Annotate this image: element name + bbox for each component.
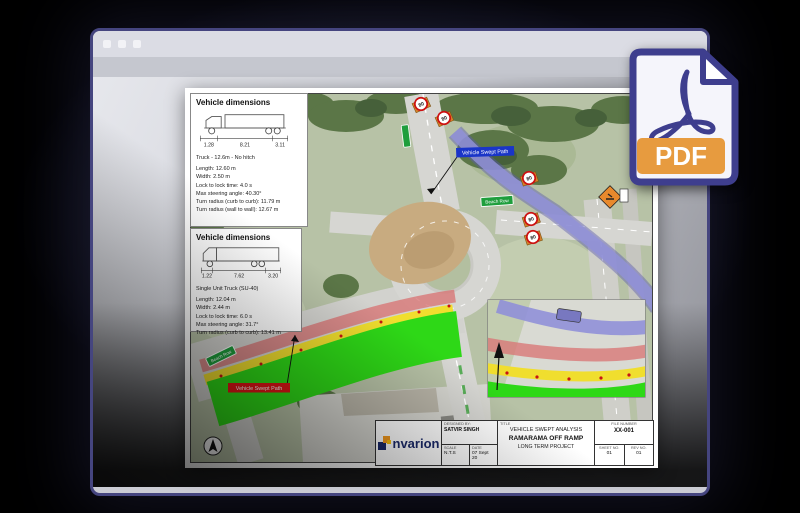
pdf-banner-label: PDF [655, 141, 707, 171]
drawing-title-line3: LONG TERM PROJECT [498, 444, 594, 450]
vehicle-spec: Width: 2.44 m [196, 304, 296, 312]
invarion-logo-icon [378, 436, 391, 451]
browser-window: 80 80 80 80 [90, 28, 710, 496]
vehicle-name: Truck - 12.6m - No hitch [196, 155, 302, 161]
title-block: nvarion Designed by: SATVIR SINGH SCALE … [375, 420, 654, 466]
file-number-label: FILE NUMBER [597, 422, 651, 426]
window-titlebar [93, 31, 707, 57]
scale-label: SCALE [444, 446, 467, 450]
window-control-dot[interactable] [103, 40, 111, 48]
drawing-title-line1: VEHICLE SWEPT ANALYSIS [498, 427, 594, 433]
date-value: 07 Sept 20 [472, 451, 495, 461]
drawing-title-line2: RAMARAMA OFF RAMP [498, 435, 594, 442]
vehicle-dimensions-box-1: Vehicle dimensions 1.28 [190, 93, 308, 227]
pdf-file-icon[interactable]: PDF [627, 46, 743, 188]
designed-by-value: SATVIR SINGH [444, 427, 495, 433]
rev-no-value: 01 [626, 451, 653, 456]
vehicle-spec: Width: 2.50 m [196, 173, 302, 181]
pdf-viewer-area: 80 80 80 80 [93, 77, 707, 487]
detail-inset [486, 300, 647, 397]
svg-text:3.20: 3.20 [268, 274, 278, 278]
scale-value: N.T.S [444, 451, 467, 456]
folded-corner-icon [703, 52, 735, 82]
desktop-background: 80 80 80 80 [0, 0, 800, 513]
date-label: DATE [472, 446, 495, 450]
window-control-dot[interactable] [118, 40, 126, 48]
vehicle-name: Single Unit Truck (SU-40) [196, 286, 296, 292]
svg-text:7.62: 7.62 [234, 274, 244, 278]
vehicle-box-title: Vehicle dimensions [196, 233, 296, 242]
svg-text:1.22: 1.22 [202, 274, 212, 278]
vehicle-spec: Length: 12.04 m [196, 296, 296, 304]
truck-diagram-icon: 1.28 8.21 3.11 [196, 109, 292, 147]
vehicle-spec: Max steering angle: 31.7° [196, 321, 296, 329]
vehicle-dimensions-box-2: Vehicle dimensions 1.22 [190, 228, 302, 332]
swept-path-label-blue: Vehicle Swept Path [456, 146, 514, 158]
invarion-logo: nvarion [376, 421, 442, 465]
truck-diagram-icon: 1.22 7.62 3.20 [196, 244, 286, 278]
vehicle-spec: Max steering angle: 40.30° [196, 190, 302, 198]
rev-no-label: REV NO. [626, 446, 653, 450]
vehicle-spec: Turn radius (wall to wall): 12.67 m [196, 206, 302, 214]
title-label: TITLE [500, 422, 510, 426]
svg-text:3.11: 3.11 [275, 143, 285, 147]
vehicle-spec: Turn radius (curb to curb): 13.41 m [196, 329, 296, 337]
street-name-sign: Beach Row [481, 195, 514, 206]
svg-text:1.28: 1.28 [204, 143, 214, 147]
north-compass-icon [204, 437, 222, 455]
vehicle-spec: Lock to lock time: 4.0 s [196, 182, 302, 190]
sheet-no-label: SHEET NO. [596, 446, 623, 450]
sheet-no-value: 01 [596, 451, 623, 456]
vehicle-spec: Lock to lock time: 6.0 s [196, 313, 296, 321]
svg-text:Vehicle Swept Path: Vehicle Swept Path [236, 386, 282, 392]
vehicle-spec: Turn radius (curb to curb): 11.79 m [196, 198, 302, 206]
vehicle-box-title: Vehicle dimensions [196, 98, 302, 107]
window-toolstrip [93, 57, 707, 77]
window-control-dot[interactable] [133, 40, 141, 48]
vehicle-spec: Length: 12.60 m [196, 165, 302, 173]
svg-text:8.21: 8.21 [240, 143, 250, 147]
logo-text: nvarion [393, 436, 440, 451]
road-north [421, 94, 443, 212]
pdf-page: 80 80 80 80 [185, 88, 658, 468]
designed-by-label: Designed by: [444, 422, 495, 426]
swept-path-label-red: Vehicle Swept Path [228, 383, 290, 393]
file-number-value: XX-001 [597, 428, 651, 434]
